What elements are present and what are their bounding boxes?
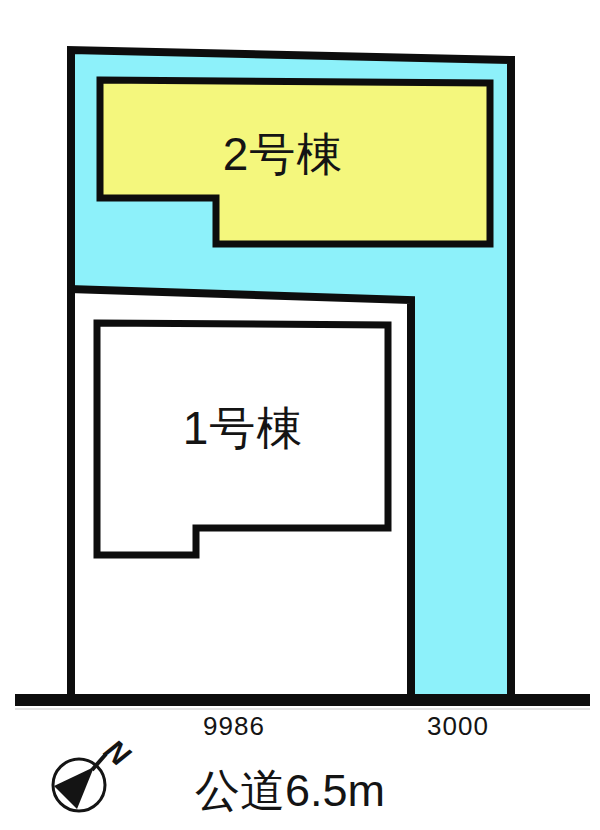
building-1-label: 1号棟 — [183, 402, 304, 454]
compass-icon: N — [53, 733, 137, 811]
dimension-frontage-right: 3000 — [427, 711, 489, 741]
site-plan-canvas: 2号棟 1号棟 9986 3000 公道6.5m N — [0, 0, 600, 830]
site-plan-diagram: 2号棟 1号棟 9986 3000 公道6.5m N — [0, 0, 600, 830]
road-line — [15, 694, 590, 706]
dimension-frontage-left: 9986 — [203, 711, 265, 741]
road-line-shadow — [15, 708, 590, 710]
road-label: 公道6.5m — [195, 765, 385, 816]
north-label: N — [98, 733, 137, 773]
building-2-label: 2号棟 — [223, 128, 344, 180]
